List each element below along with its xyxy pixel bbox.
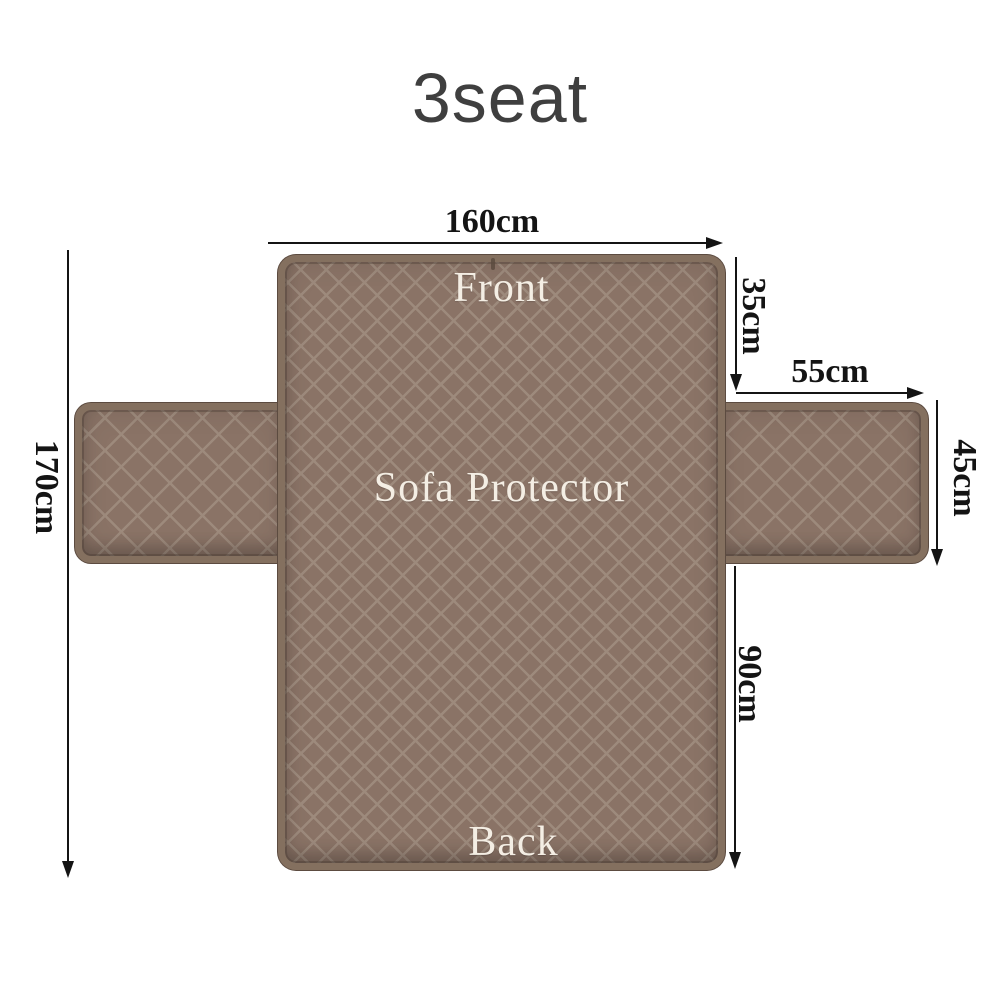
right-armrest-flap bbox=[713, 403, 928, 563]
left-armrest-flap bbox=[75, 403, 290, 563]
main-cover-panel: Front Sofa Protector Back bbox=[278, 255, 725, 870]
back-section-dimension-label: 90cm bbox=[729, 624, 769, 744]
armrest-width-dimension-line bbox=[736, 392, 908, 394]
back-label: Back bbox=[309, 818, 718, 866]
sofa-protector-diagram: 3seat Front Sofa Protector Back 160cm 17… bbox=[0, 0, 1000, 1000]
armrest-length-dimension-label: 45cm bbox=[944, 418, 984, 538]
armrest-length-dimension-line bbox=[936, 400, 938, 550]
armrest-width-dimension-label: 55cm bbox=[740, 353, 920, 391]
total-width-dimension-label: 160cm bbox=[268, 203, 716, 241]
product-title: 3seat bbox=[0, 58, 1000, 138]
arrow-down-icon bbox=[62, 861, 74, 878]
front-label: Front bbox=[285, 264, 718, 312]
total-length-dimension-label: 170cm bbox=[26, 427, 66, 547]
total-width-dimension-line bbox=[268, 242, 706, 244]
arrow-down-icon bbox=[729, 852, 741, 869]
product-name-label: Sofa Protector bbox=[285, 464, 718, 512]
arrow-down-icon bbox=[931, 549, 943, 566]
total-length-dimension-line bbox=[67, 250, 69, 862]
